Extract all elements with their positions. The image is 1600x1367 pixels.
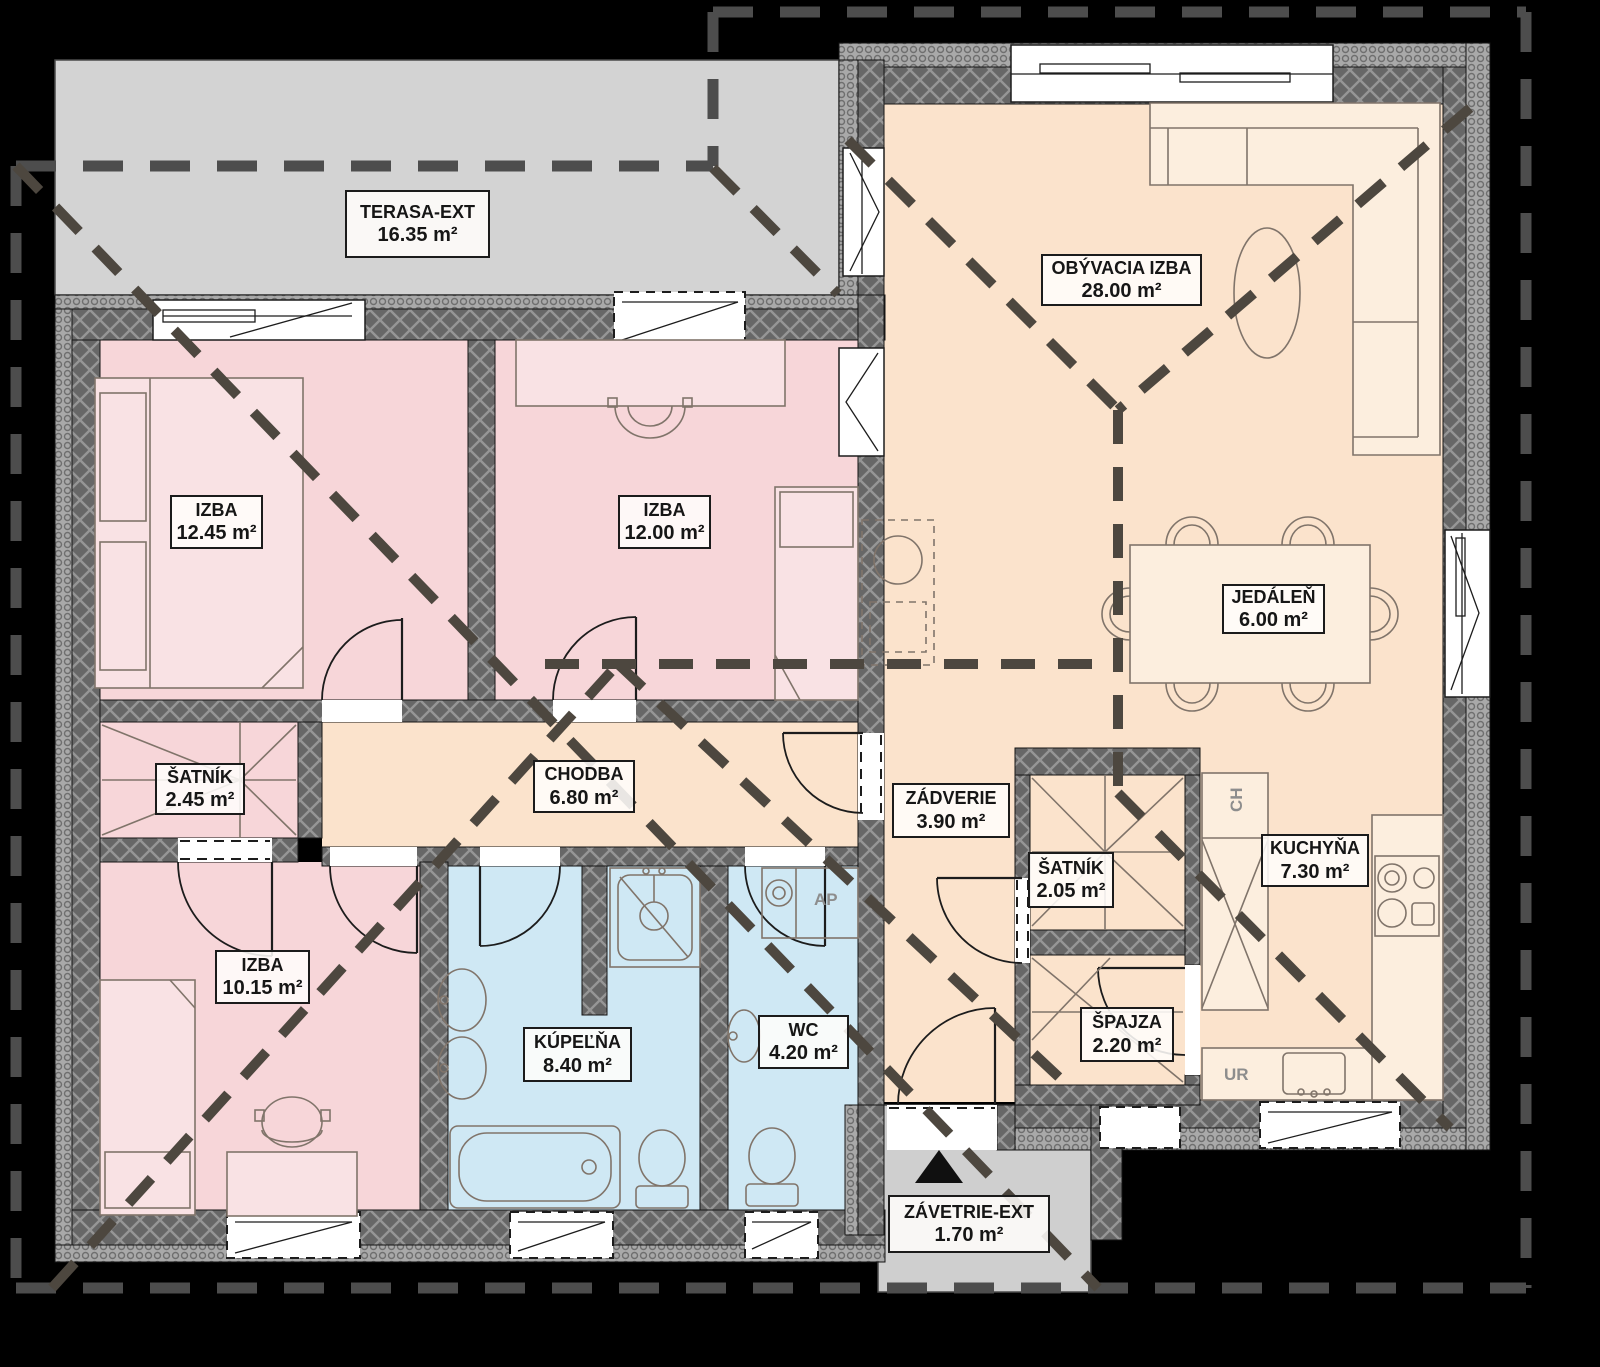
washer-label: AP	[814, 890, 838, 909]
room-label-zadverie: ZÁDVERIE 3.90 m²	[892, 783, 1010, 838]
room-label-wc: WC 4.20 m²	[758, 1015, 849, 1069]
room-area: 16.35 m²	[377, 223, 457, 247]
room-label-obyvacia: OBÝVACIA IZBA 28.00 m²	[1041, 254, 1202, 306]
window-living-top	[1011, 45, 1333, 102]
room-name: CHODBA	[545, 763, 624, 786]
window-living-left	[843, 148, 884, 276]
fridge-label: CH	[1227, 787, 1246, 812]
room-label-jedalen: JEDÁLEŇ 6.00 m²	[1222, 584, 1325, 634]
room-area: 4.20 m²	[769, 1041, 838, 1065]
room-name: WC	[789, 1019, 819, 1042]
window-bottom-spajza	[1100, 1107, 1180, 1148]
floor-plan-drawing: AP CH UR	[0, 0, 1600, 1367]
floor-plan-canvas: AP CH UR	[0, 0, 1600, 1367]
window-bottom-wc	[745, 1212, 818, 1258]
room-area: 28.00 m²	[1081, 279, 1161, 303]
room-name: JEDÁLEŇ	[1231, 586, 1315, 609]
room-name: IZBA	[644, 499, 686, 522]
room-area: 6.00 m²	[1239, 608, 1308, 632]
room-name: OBÝVACIA IZBA	[1051, 257, 1191, 280]
room-name: ŠATNÍK	[1038, 857, 1104, 880]
room-label-kupelna: KÚPEĽŇA 8.40 m²	[523, 1027, 632, 1082]
room-name: KUCHYŇA	[1270, 837, 1360, 860]
room-area: 3.90 m²	[917, 810, 986, 834]
room-label-satnik-245: ŠATNÍK 2.45 m²	[155, 763, 245, 815]
room-name: ŠATNÍK	[167, 766, 233, 789]
room-name: KÚPEĽŇA	[534, 1031, 621, 1054]
room-name: ZÁVETRIE-EXT	[904, 1201, 1034, 1224]
room-name: IZBA	[242, 954, 284, 977]
room-area: 2.20 m²	[1093, 1034, 1162, 1058]
room-area: 6.80 m²	[550, 786, 619, 810]
room-label-terasa: TERASA-EXT 16.35 m²	[345, 190, 490, 258]
room-label-izba-1245: IZBA 12.45 m²	[170, 495, 263, 549]
room-name: ŠPAJZA	[1092, 1011, 1162, 1034]
room-label-spajza: ŠPAJZA 2.20 m²	[1080, 1007, 1174, 1062]
window-bottom-kitchen	[1260, 1102, 1400, 1148]
room-area: 2.05 m²	[1037, 879, 1106, 903]
room-area: 8.40 m²	[543, 1054, 612, 1078]
room-area: 2.45 m²	[166, 788, 235, 812]
room-label-satnik-205: ŠATNÍK 2.05 m²	[1028, 852, 1114, 908]
room-label-izba-1015: IZBA 10.15 m²	[215, 950, 310, 1004]
room-area: 12.45 m²	[176, 521, 256, 545]
room-area: 1.70 m²	[935, 1223, 1004, 1247]
window-right	[1445, 530, 1490, 697]
room-name: TERASA-EXT	[360, 201, 475, 224]
room-name: ZÁDVERIE	[905, 787, 996, 810]
window-bottom-kupelna	[510, 1212, 613, 1258]
room-label-zavetrie: ZÁVETRIE-EXT 1.70 m²	[888, 1195, 1050, 1253]
room-label-kuchyna: KUCHYŇA 7.30 m²	[1261, 834, 1369, 887]
room-label-izba-1200: IZBA 12.00 m²	[618, 495, 711, 549]
utility-sink-label: UR	[1224, 1065, 1249, 1084]
terrace-door	[839, 348, 884, 456]
room-name: IZBA	[196, 499, 238, 522]
room-area: 12.00 m²	[624, 521, 704, 545]
room-area: 7.30 m²	[1281, 860, 1350, 884]
window-bottom-izba	[227, 1212, 360, 1258]
room-area: 10.15 m²	[222, 976, 302, 1000]
window-terrace-2	[614, 292, 745, 344]
room-label-chodba: CHODBA 6.80 m²	[533, 760, 635, 813]
